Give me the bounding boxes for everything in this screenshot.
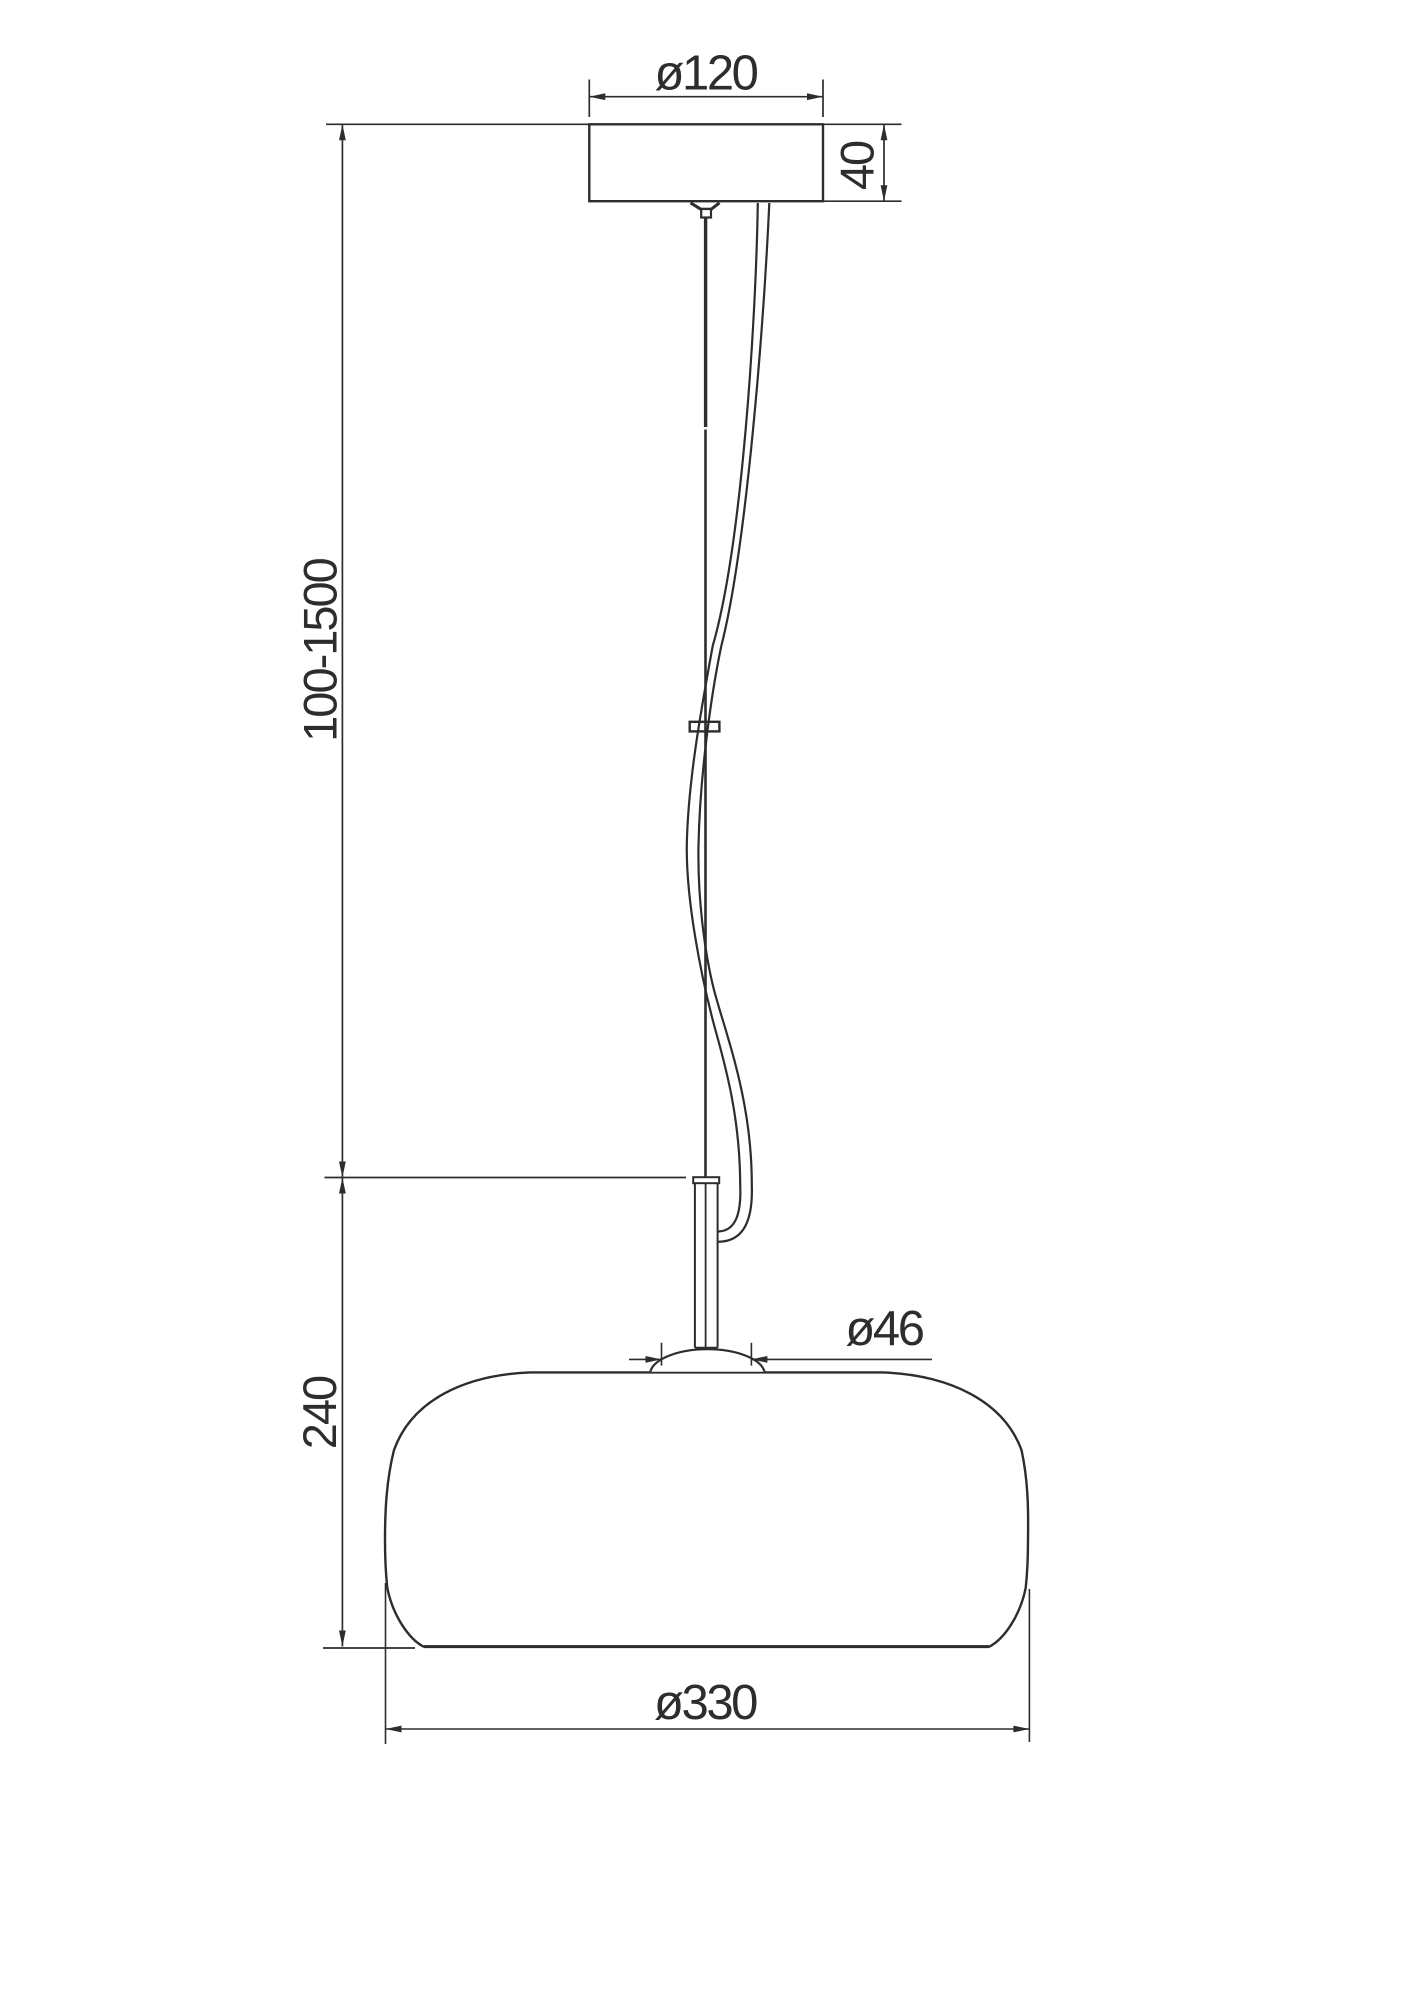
svg-text:100-1500: 100-1500: [294, 558, 347, 741]
svg-text:ø46: ø46: [845, 1302, 923, 1356]
svg-text:40: 40: [831, 141, 884, 190]
svg-text:ø330: ø330: [654, 1676, 757, 1730]
svg-text:240: 240: [293, 1376, 346, 1449]
svg-text:ø120: ø120: [654, 47, 757, 101]
